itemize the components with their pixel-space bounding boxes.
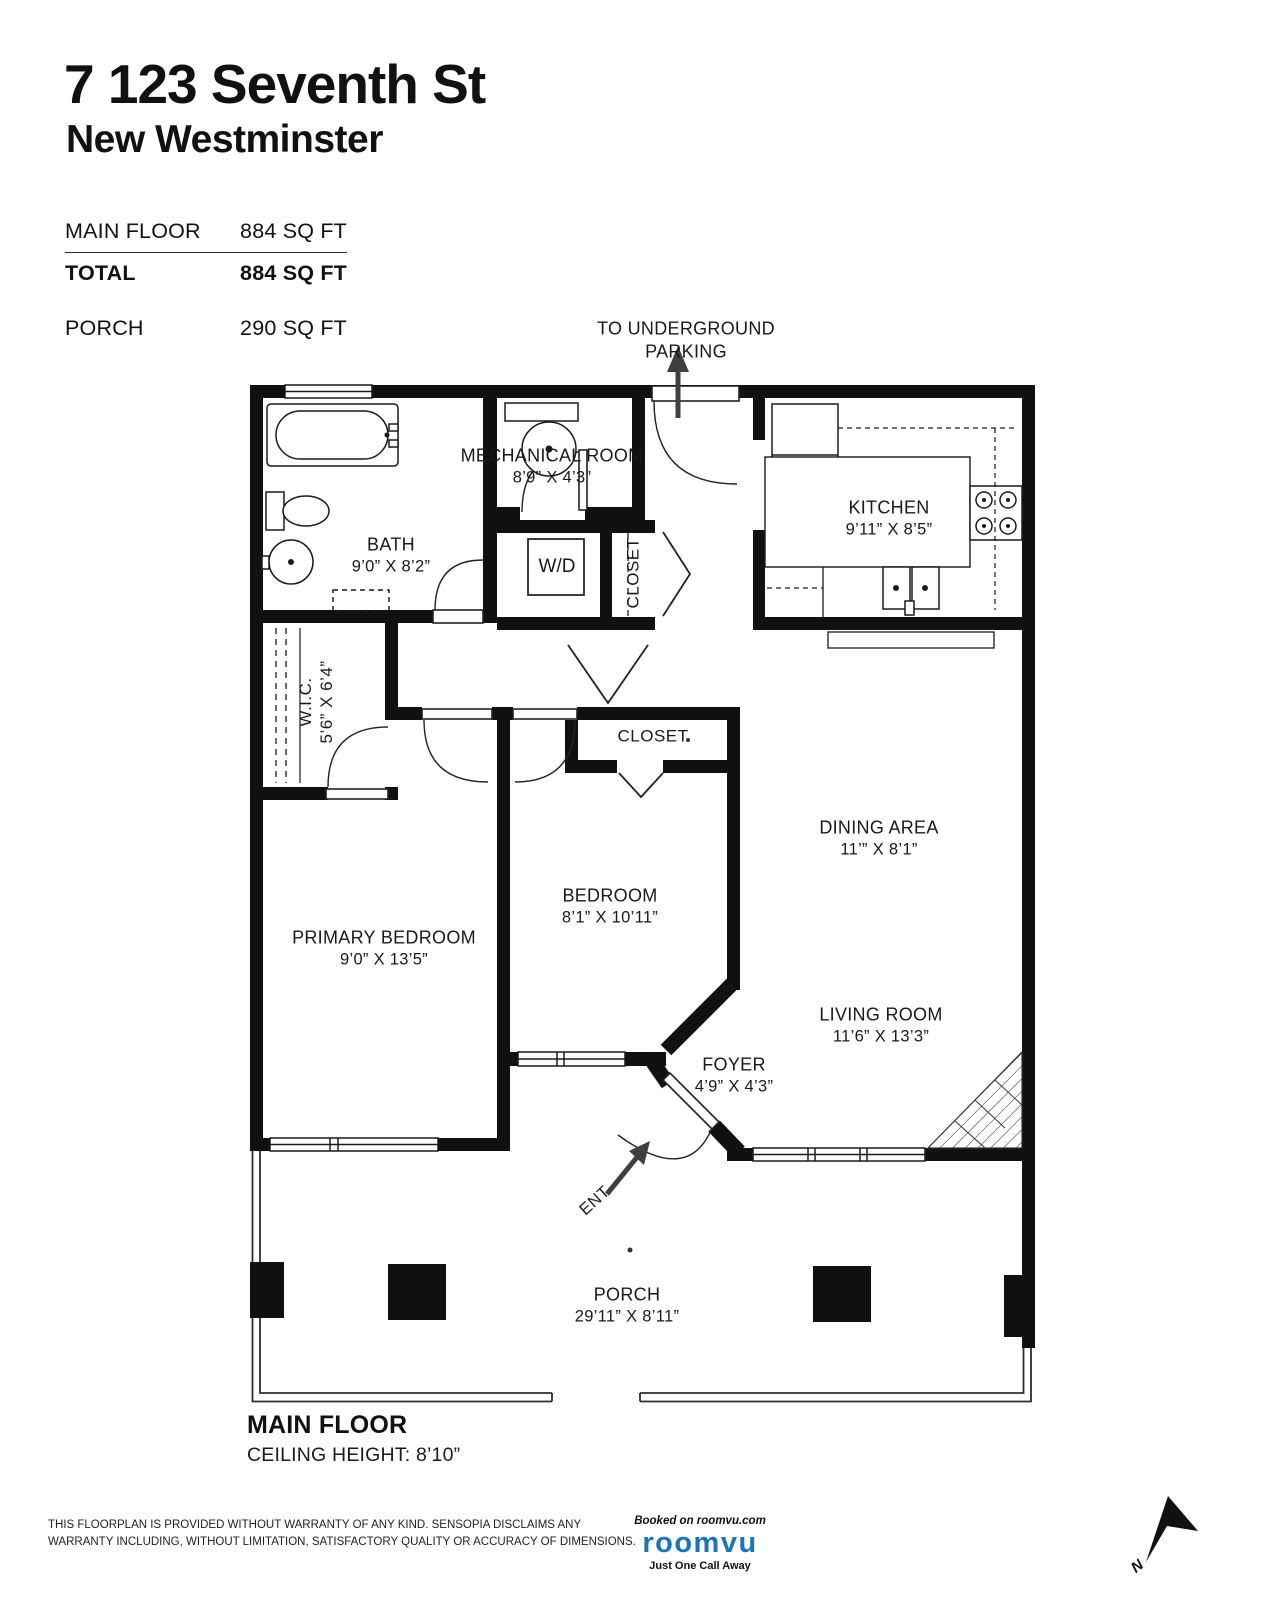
living-room-window — [753, 1148, 925, 1161]
toilet — [266, 492, 329, 530]
room-label-mechanical: MECHANICAL ROOM 8’9” X 4’3” — [461, 444, 644, 487]
corner-hatch — [928, 1052, 1022, 1148]
room-label-kitchen: KITCHEN 9’11” X 8’5” — [846, 496, 933, 539]
fridge — [772, 404, 838, 462]
hall-opening-marker — [568, 645, 648, 703]
room-label-primary: PRIMARY BEDROOM 9’0” X 13’5” — [292, 926, 476, 969]
roomvu-logo: roomvu — [642, 1527, 757, 1560]
kitchen-sink — [883, 567, 939, 615]
bedroom-closet-label: CLOSET — [617, 725, 688, 746]
roomvu-tagline: Just One Call Away — [649, 1560, 750, 1572]
bath-door — [433, 560, 483, 623]
porch-outline — [253, 1151, 1032, 1402]
bath-fixtures — [262, 404, 398, 612]
stove — [970, 486, 1022, 540]
washer-dryer-label: W/D — [539, 555, 576, 579]
bath-cabinet — [333, 590, 389, 612]
ceiling-height: CEILING HEIGHT: 8’10” — [247, 1444, 460, 1467]
closet-opening-marker — [619, 773, 663, 797]
disclaimer-text: THIS FLOORPLAN IS PROVIDED WITHOUT WARRA… — [48, 1517, 648, 1550]
north-arrow-icon — [1146, 1496, 1198, 1562]
bath-sink — [262, 540, 313, 584]
room-label-living: LIVING ROOM 11’6” X 13’3” — [819, 1003, 942, 1046]
plan-dot — [628, 1248, 633, 1253]
room-label-bath: BATH 9’0” X 8’2” — [352, 533, 431, 576]
hall-closet-bifold-marker — [663, 532, 690, 616]
hall-closet-label: CLOSET — [622, 537, 643, 608]
entry-arrow — [607, 1141, 650, 1194]
floorplan-page: 7 123 Seventh St New Westminster MAIN FL… — [0, 0, 1275, 1610]
mechanical-shelf — [505, 403, 578, 421]
parking-door — [652, 386, 739, 484]
floor-name: MAIN FLOOR — [247, 1411, 407, 1440]
room-label-porch: PORCH 29’11” X 8’11” — [575, 1283, 679, 1326]
bathtub — [267, 404, 398, 466]
floorplan-drawing — [0, 0, 1275, 1610]
primary-bedroom-window — [270, 1138, 438, 1151]
room-label-foyer: FOYER 4’9” X 4’3” — [695, 1053, 774, 1096]
room-label-dining: DINING AREA 11’” X 8’1” — [819, 816, 938, 859]
bath-window — [285, 385, 372, 398]
primary-bedroom-door — [422, 709, 492, 782]
bedroom-window — [518, 1052, 625, 1066]
bar-counter — [828, 632, 994, 648]
room-label-bedroom: BEDROOM 8’1” X 10’11” — [562, 884, 658, 927]
booked-on-text: Booked on roomvu.com — [634, 1515, 766, 1527]
parking-annotation: TO UNDERGROUND PARKING — [597, 318, 775, 363]
wic-label: W.I.C. 5’6” X 6’4” — [295, 661, 338, 744]
